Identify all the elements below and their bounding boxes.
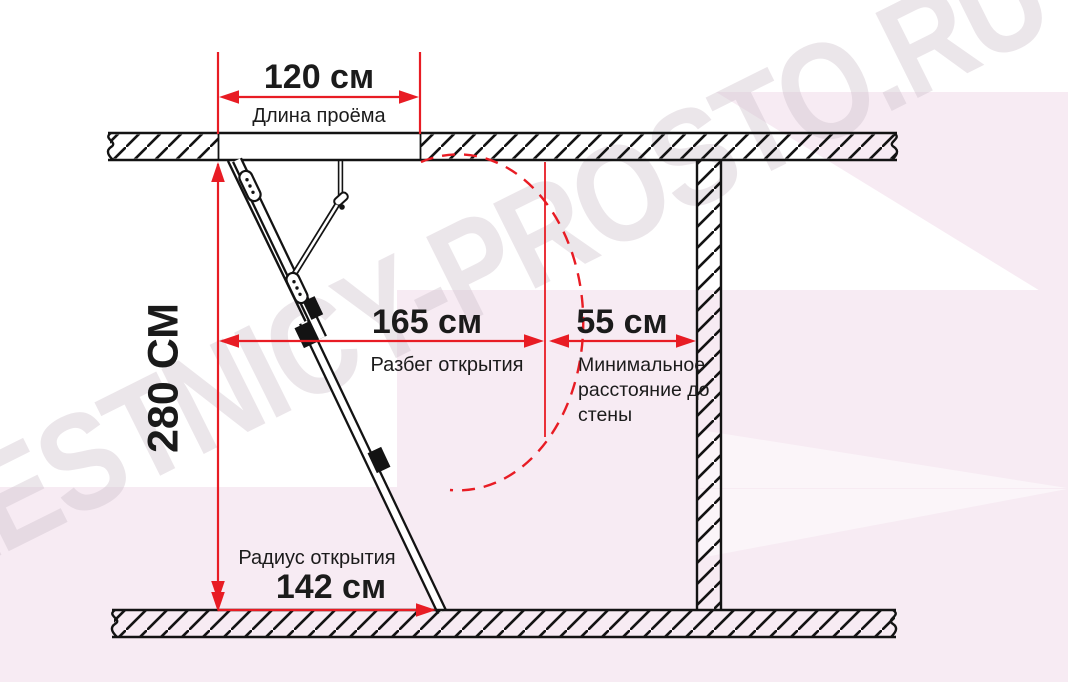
- dim-opening-span-value: 165 см: [372, 303, 482, 342]
- dim-height-value: 280 СМ: [140, 303, 189, 453]
- dim-opening-length-value: 120 см: [264, 58, 374, 97]
- dim-opening-radius-value: 142 см: [276, 568, 386, 607]
- dim-opening-span-label: Разбег открытия: [371, 354, 524, 377]
- dim-opening-radius-label: Радиус открытия: [238, 547, 395, 570]
- ladder-back-stringer: [228, 161, 316, 343]
- hinge-plate-lower: [284, 271, 310, 305]
- dim-wall-clearance-value: 55 см: [576, 303, 667, 342]
- dim-wall-clearance-label: Минимальное расстояние до стены: [578, 353, 728, 428]
- attic-ladder: [228, 160, 442, 612]
- spring-strut: [285, 161, 349, 284]
- ceiling-beam: [108, 133, 897, 160]
- dim-opening-length-label: Длина проёма: [252, 105, 385, 128]
- hatch-opening: [219, 134, 419, 158]
- attic-ladder-dimension-diagram: LESTNICY-PROSTO.RU: [0, 0, 1068, 682]
- dim-height: [211, 162, 225, 612]
- floor-beam: [112, 610, 896, 637]
